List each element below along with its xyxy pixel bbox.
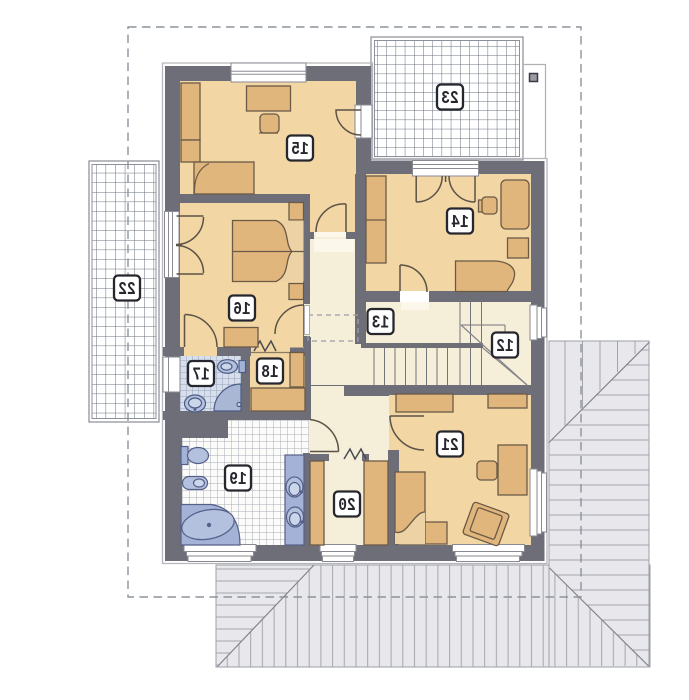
svg-text:20: 20 — [338, 496, 356, 516]
svg-text:23: 23 — [441, 89, 459, 109]
svg-text:12: 12 — [496, 337, 514, 357]
svg-text:16: 16 — [233, 300, 251, 320]
svg-text:13: 13 — [372, 314, 390, 334]
svg-text:22: 22 — [118, 280, 136, 300]
svg-text:14: 14 — [451, 213, 469, 233]
svg-text:21: 21 — [441, 436, 459, 456]
svg-text:19: 19 — [229, 470, 247, 490]
svg-text:17: 17 — [192, 366, 210, 386]
svg-text:18: 18 — [261, 363, 279, 383]
svg-text:15: 15 — [291, 140, 309, 160]
